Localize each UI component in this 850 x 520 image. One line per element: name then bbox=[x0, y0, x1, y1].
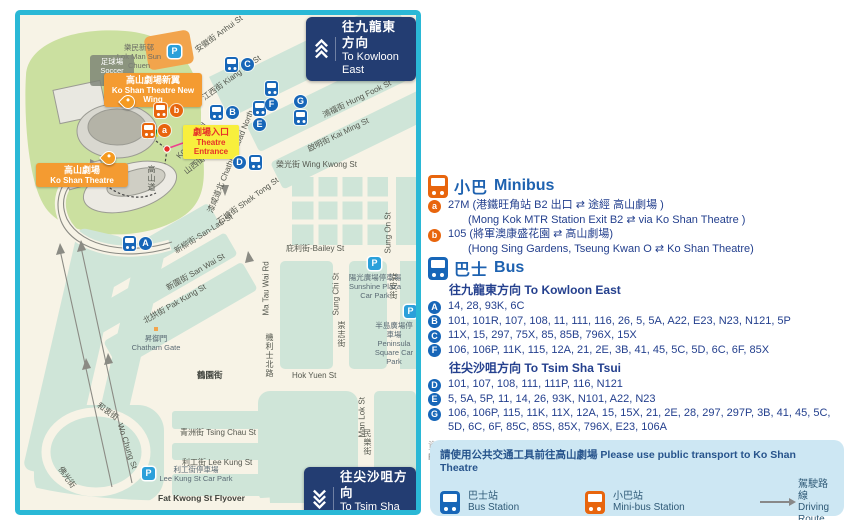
street-sung-on: Sung On St bbox=[384, 212, 393, 253]
chevron-up-icon bbox=[313, 37, 336, 61]
legend-bus-station: 巴士站Bus Station bbox=[440, 479, 585, 520]
sign-to-kowloon-east: 往九龍東方向 To Kowloon East bbox=[306, 17, 416, 81]
bus-icon bbox=[294, 110, 307, 125]
bus-row-F: F 106, 106P, 11K, 115, 12A, 21, 2E, 3B, … bbox=[428, 344, 847, 358]
carpark-icon-lok-man: P bbox=[168, 45, 181, 58]
bus-icon bbox=[249, 155, 262, 170]
bus-icon bbox=[123, 236, 136, 251]
label-sunshine-plaza-car-park: 陽光廣場停車場 Sunshine Plaza Car Park bbox=[348, 273, 402, 300]
label-lee-kung-st-car-park: 利工街停車場 Lee Kung St Car Park bbox=[159, 465, 233, 483]
bus-row-B: B 101, 101R, 107, 108, 11, 111, 116, 26,… bbox=[428, 315, 847, 329]
bus-section-tsim-sha-tsui: 往尖沙咀方向 To Tsim Sha Tsui bbox=[428, 359, 847, 376]
label-chatham-gate: 昇御門 Chatham Gate bbox=[125, 325, 187, 352]
minibus-icon bbox=[154, 103, 167, 118]
bus-stop-G: G bbox=[294, 95, 307, 125]
map-panel: 安徽街 Anhui St 江西街 Kiang Hsi St Ko Shan Rd… bbox=[15, 10, 421, 515]
street-ko-shan-dao: 高山道 bbox=[146, 165, 157, 192]
bus-stop-A: A bbox=[123, 236, 152, 251]
minibus-icon bbox=[142, 123, 155, 138]
driving-route-icon bbox=[760, 501, 790, 503]
bus-icon bbox=[210, 105, 223, 120]
carpark-icon-lee-kung: P bbox=[142, 467, 155, 480]
street-ma-tau-wai: Ma Tau Wai Rd bbox=[262, 261, 271, 315]
bus-header: 巴士 Bus bbox=[428, 257, 847, 279]
street-sung-chi: Sung Chi St bbox=[332, 273, 341, 316]
minibus-route-b: b 105 (將軍澳康盛花園 ⇄ 高山劇場) bbox=[428, 228, 847, 242]
bus-stop-B: B bbox=[210, 105, 239, 120]
minibus-header: 小巴 Minibus bbox=[428, 175, 847, 197]
bus-station-icon bbox=[440, 491, 460, 514]
minibus-station-icon bbox=[585, 491, 605, 514]
carpark-icon-sunshine: P bbox=[368, 257, 381, 270]
street-fat-kwong-flyover: Fat Kwong St Flyover bbox=[158, 493, 245, 503]
bus-icon bbox=[428, 257, 448, 280]
street-hok-yuen-zh: 鶴園街 bbox=[197, 369, 223, 381]
bus-row-D: D 101, 107, 108, 111, 111P, 116, N121 bbox=[428, 378, 847, 392]
minibus-route-b-en: (Hong Sing Gardens, Tseung Kwan O ⇄ Ko S… bbox=[428, 243, 847, 257]
bus-row-E: E 5, 5A, 5P, 11, 14, 26, 93K, N101, A22,… bbox=[428, 393, 847, 407]
street-man-lok-zh: 民樂街 bbox=[362, 429, 373, 456]
bus-section-kowloon-east: 往九龍東方向 To Kowloon East bbox=[428, 281, 847, 298]
legend-minibus-station: 小巴站Mini-bus Station bbox=[585, 479, 760, 520]
minibus-route-a-en: (Mong Kok MTR Station Exit B2 ⇄ via Ko S… bbox=[428, 214, 847, 228]
street-wing-kwong: 榮光街 Wing Kwong St bbox=[276, 159, 357, 170]
label-peninsula-square-car-park: 半島廣場停車場 Peninsula Square Car Park bbox=[372, 321, 416, 366]
street-bailey: 庇利街-Bailey St bbox=[286, 243, 344, 254]
bus-icon bbox=[265, 81, 278, 96]
street-sung-chi-zh: 崇志街 bbox=[336, 321, 347, 348]
street-tsing-chau: 青洲街 Tsing Chau St bbox=[180, 427, 256, 438]
sign-to-tsim-sha-tsui: 往尖沙咀方向 To Tsim Sha Tsui bbox=[304, 467, 416, 515]
minibus-route-a: a 27M (港鐵旺角站 B2 出口 ⇄ 途經 高山劇場 ) bbox=[428, 199, 847, 213]
street-gillies-ave-north: 機利士北路 bbox=[264, 333, 275, 378]
legend-driving-route: 駕駛路線Driving Route bbox=[760, 479, 838, 520]
minibus-icon bbox=[428, 175, 448, 198]
map-legend: 請使用公共交通工具前往高山劇場 Please use public transp… bbox=[430, 440, 844, 516]
chevron-down-icon bbox=[311, 487, 334, 511]
street-hok-yuen: Hok Yuen St bbox=[292, 371, 336, 380]
bus-row-C: C 11X, 15, 297, 75X, 85, 85B, 796X, 15X bbox=[428, 329, 847, 343]
bus-stop-F: F bbox=[265, 81, 278, 111]
chatham-gate-marker bbox=[154, 327, 158, 331]
label-theatre-entrance: 劇場入口 Theatre Entrance bbox=[183, 125, 239, 159]
minibus-stop-a: a bbox=[142, 123, 171, 138]
bus-stop-D: D bbox=[233, 155, 262, 170]
carpark-icon-peninsula: P bbox=[404, 305, 417, 318]
label-ko-shan-theatre: 高山劇場 Ko Shan Theatre bbox=[36, 163, 128, 187]
bus-row-A: A 14, 28, 93K, 6C bbox=[428, 300, 847, 314]
legend-title: 請使用公共交通工具前往高山劇場 Please use public transp… bbox=[440, 447, 834, 474]
ko-shan-theatre-transport-map: 安徽街 Anhui St 江西街 Kiang Hsi St Ko Shan Rd… bbox=[0, 0, 850, 520]
bus-stop-C: C bbox=[225, 57, 254, 72]
bus-icon bbox=[225, 57, 238, 72]
bus-row-G: G 106, 106P, 115, 11K, 11X, 12A, 15, 15X… bbox=[428, 407, 847, 434]
minibus-stop-b: b bbox=[154, 103, 183, 118]
transport-info-panel: 小巴 Minibus a 27M (港鐵旺角站 B2 出口 ⇄ 途經 高山劇場 … bbox=[428, 174, 847, 462]
